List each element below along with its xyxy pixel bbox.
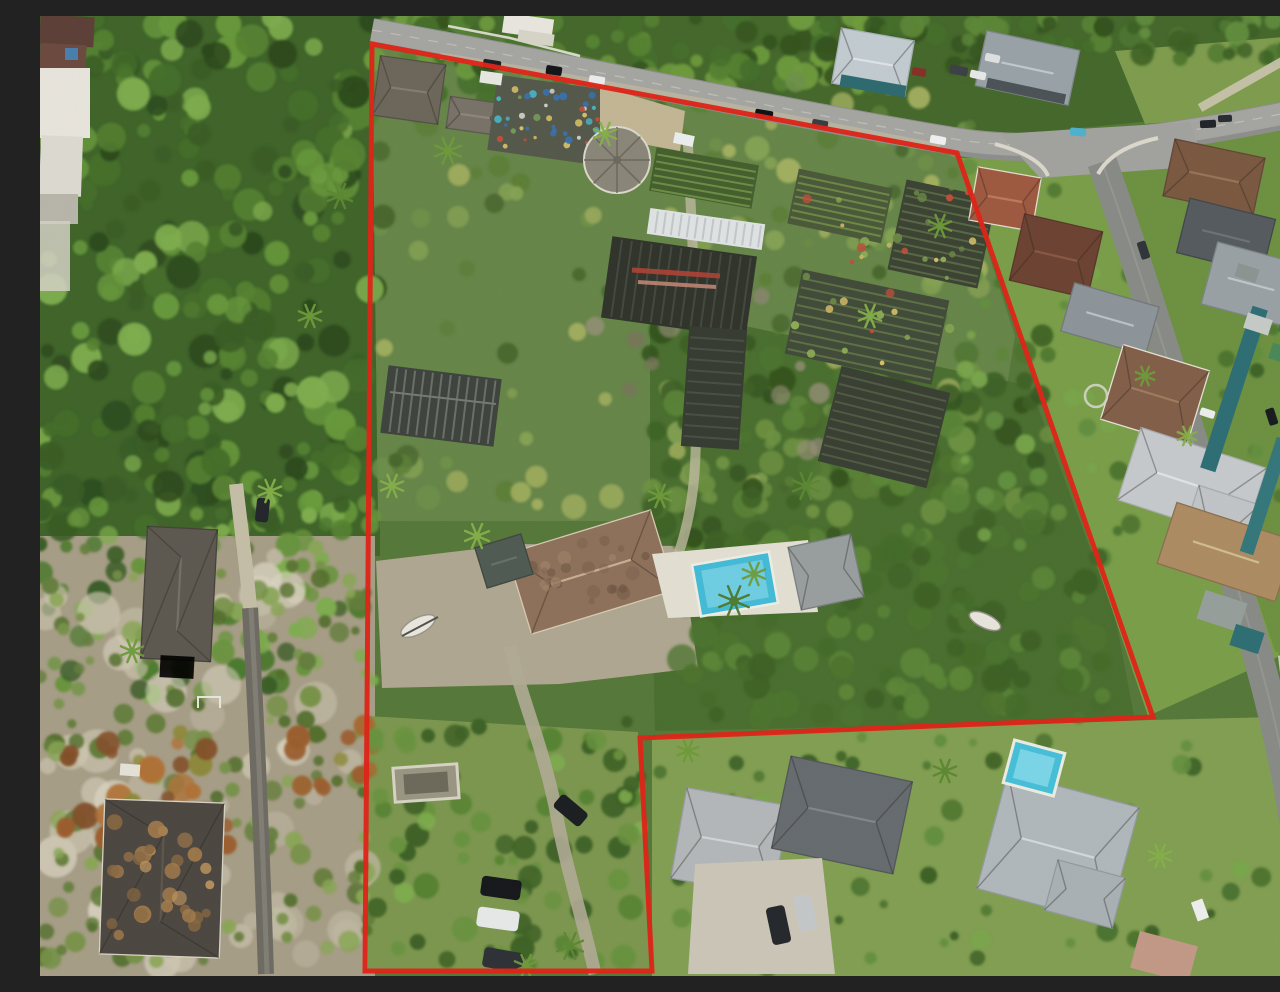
aerial-photo-canvas: [40, 16, 1280, 976]
photo-grain: [40, 16, 1280, 976]
aerial-property-photo: [40, 16, 1280, 976]
